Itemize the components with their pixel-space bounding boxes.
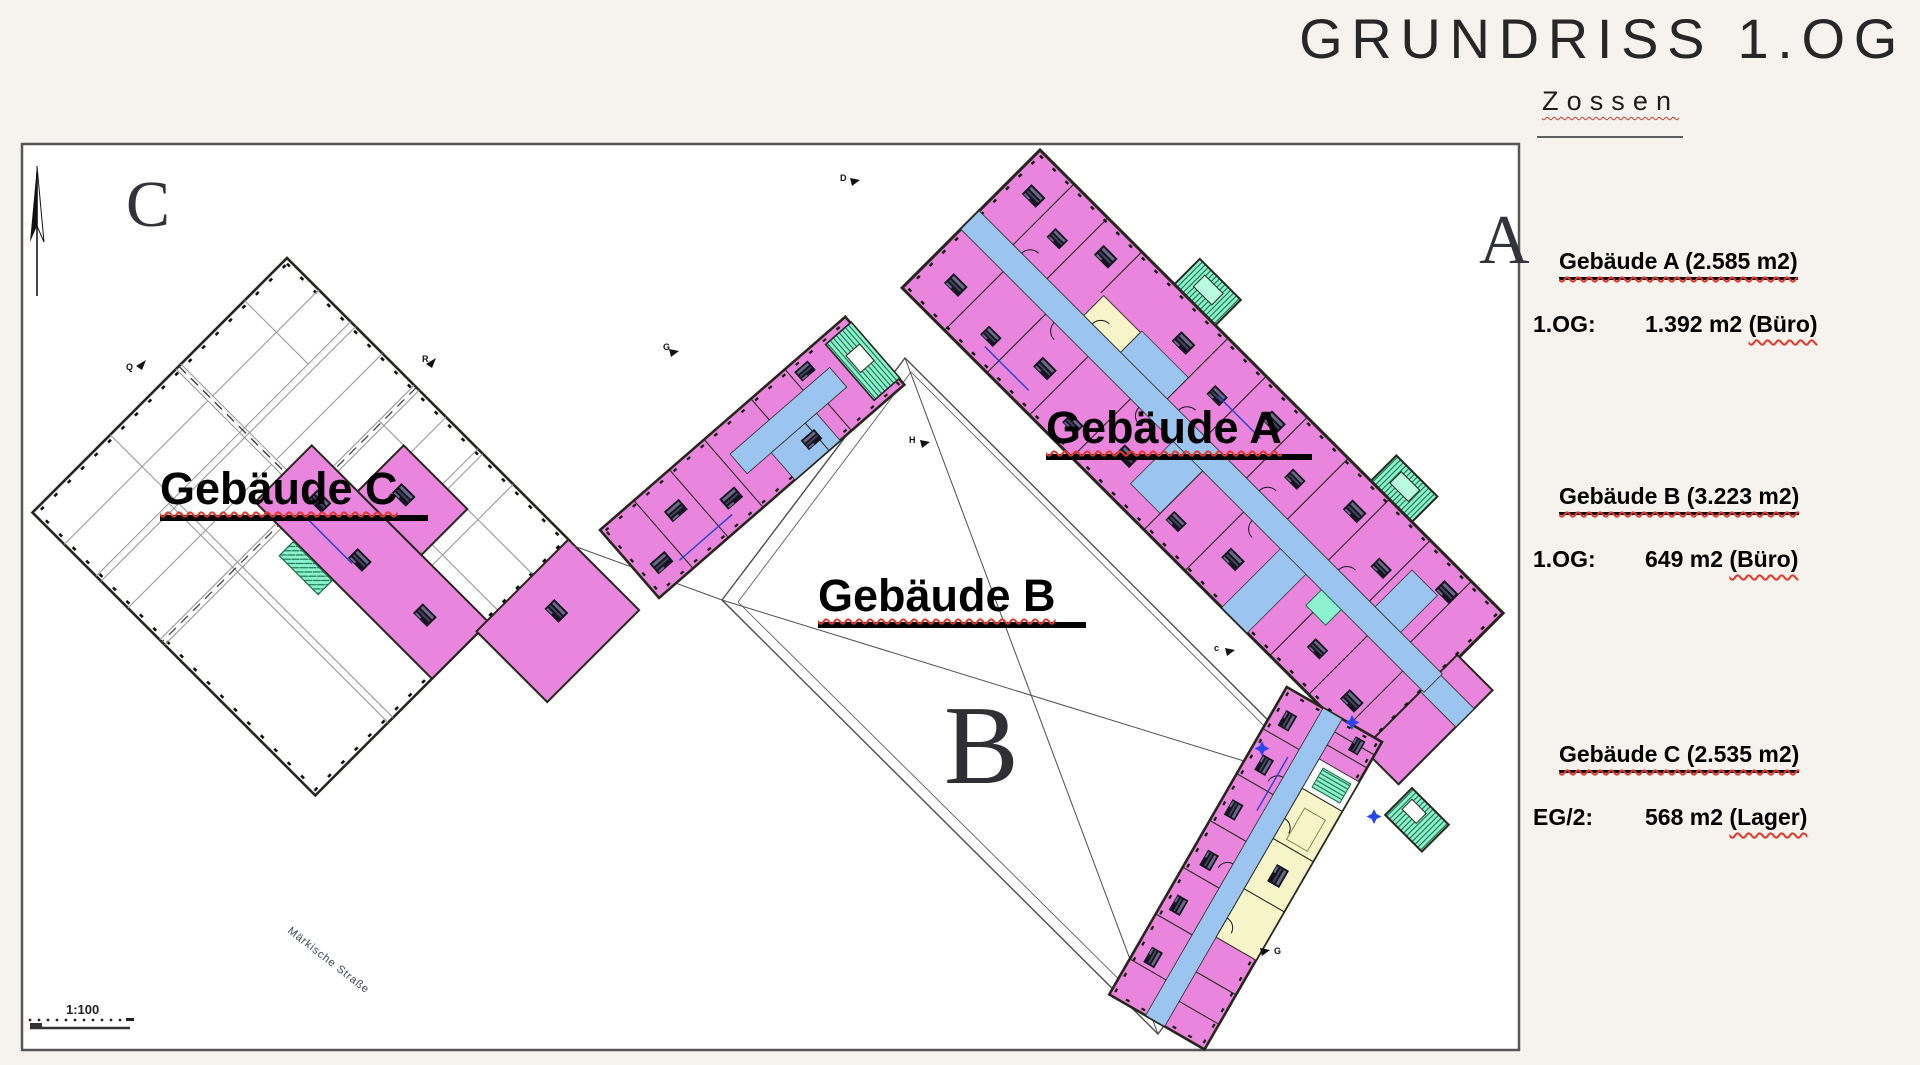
building-a-label: Gebäude A	[1046, 404, 1312, 460]
svg-text:Q: Q	[126, 362, 133, 372]
page-subtitle: Zossen	[1542, 86, 1679, 117]
area-value: 568 m2	[1645, 804, 1723, 830]
area-value: 649 m2	[1645, 546, 1723, 572]
legend-detail-b: 1.OG:649 m2 (Büro)	[1533, 546, 1913, 573]
svg-text:R: R	[422, 354, 429, 364]
block-letter-a: A	[1479, 206, 1530, 276]
svg-text:1:100: 1:100	[66, 1002, 99, 1017]
floor-plan-page: { "header": { "title": "GRUNDRISS 1.OG",…	[0, 0, 1920, 1065]
area-note: (Büro)	[1729, 546, 1798, 572]
building-c-label: Gebäude C	[160, 465, 428, 521]
building-b-label: Gebäude B	[818, 572, 1086, 628]
floor-label: 1.OG:	[1533, 546, 1645, 573]
svg-text:H: H	[909, 435, 916, 445]
block-letter-b: B	[944, 690, 1019, 802]
subtitle-rule	[1537, 136, 1683, 138]
block-letter-c: C	[126, 172, 170, 238]
legend-detail-c: EG/2:568 m2 (Lager)	[1533, 804, 1913, 831]
area-value: 1.392 m2	[1645, 311, 1742, 337]
legend-heading-b: Gebäude B (3.223 m2)	[1559, 483, 1799, 515]
legend-detail-a: 1.OG:1.392 m2 (Büro)	[1533, 311, 1913, 338]
svg-text:c: c	[1214, 643, 1219, 653]
area-note: (Büro)	[1749, 311, 1818, 337]
svg-text:D: D	[840, 173, 847, 183]
legend-building-a: Gebäude A (2.585 m2) 1.OG:1.392 m2 (Büro…	[1533, 248, 1913, 338]
legend-heading-a: Gebäude A (2.585 m2)	[1559, 248, 1798, 280]
legend-heading-c: Gebäude C (2.535 m2)	[1559, 741, 1799, 773]
legend-building-c: Gebäude C (2.535 m2) EG/2:568 m2 (Lager)	[1533, 741, 1913, 831]
page-title: GRUNDRISS 1.OG	[1299, 6, 1906, 71]
floor-label: 1.OG:	[1533, 311, 1645, 338]
floor-label: EG/2:	[1533, 804, 1645, 831]
area-note: (Lager)	[1729, 804, 1807, 830]
legend-building-b: Gebäude B (3.223 m2) 1.OG:649 m2 (Büro)	[1533, 483, 1913, 573]
svg-text:G: G	[663, 342, 670, 352]
svg-text:G: G	[1274, 946, 1281, 956]
